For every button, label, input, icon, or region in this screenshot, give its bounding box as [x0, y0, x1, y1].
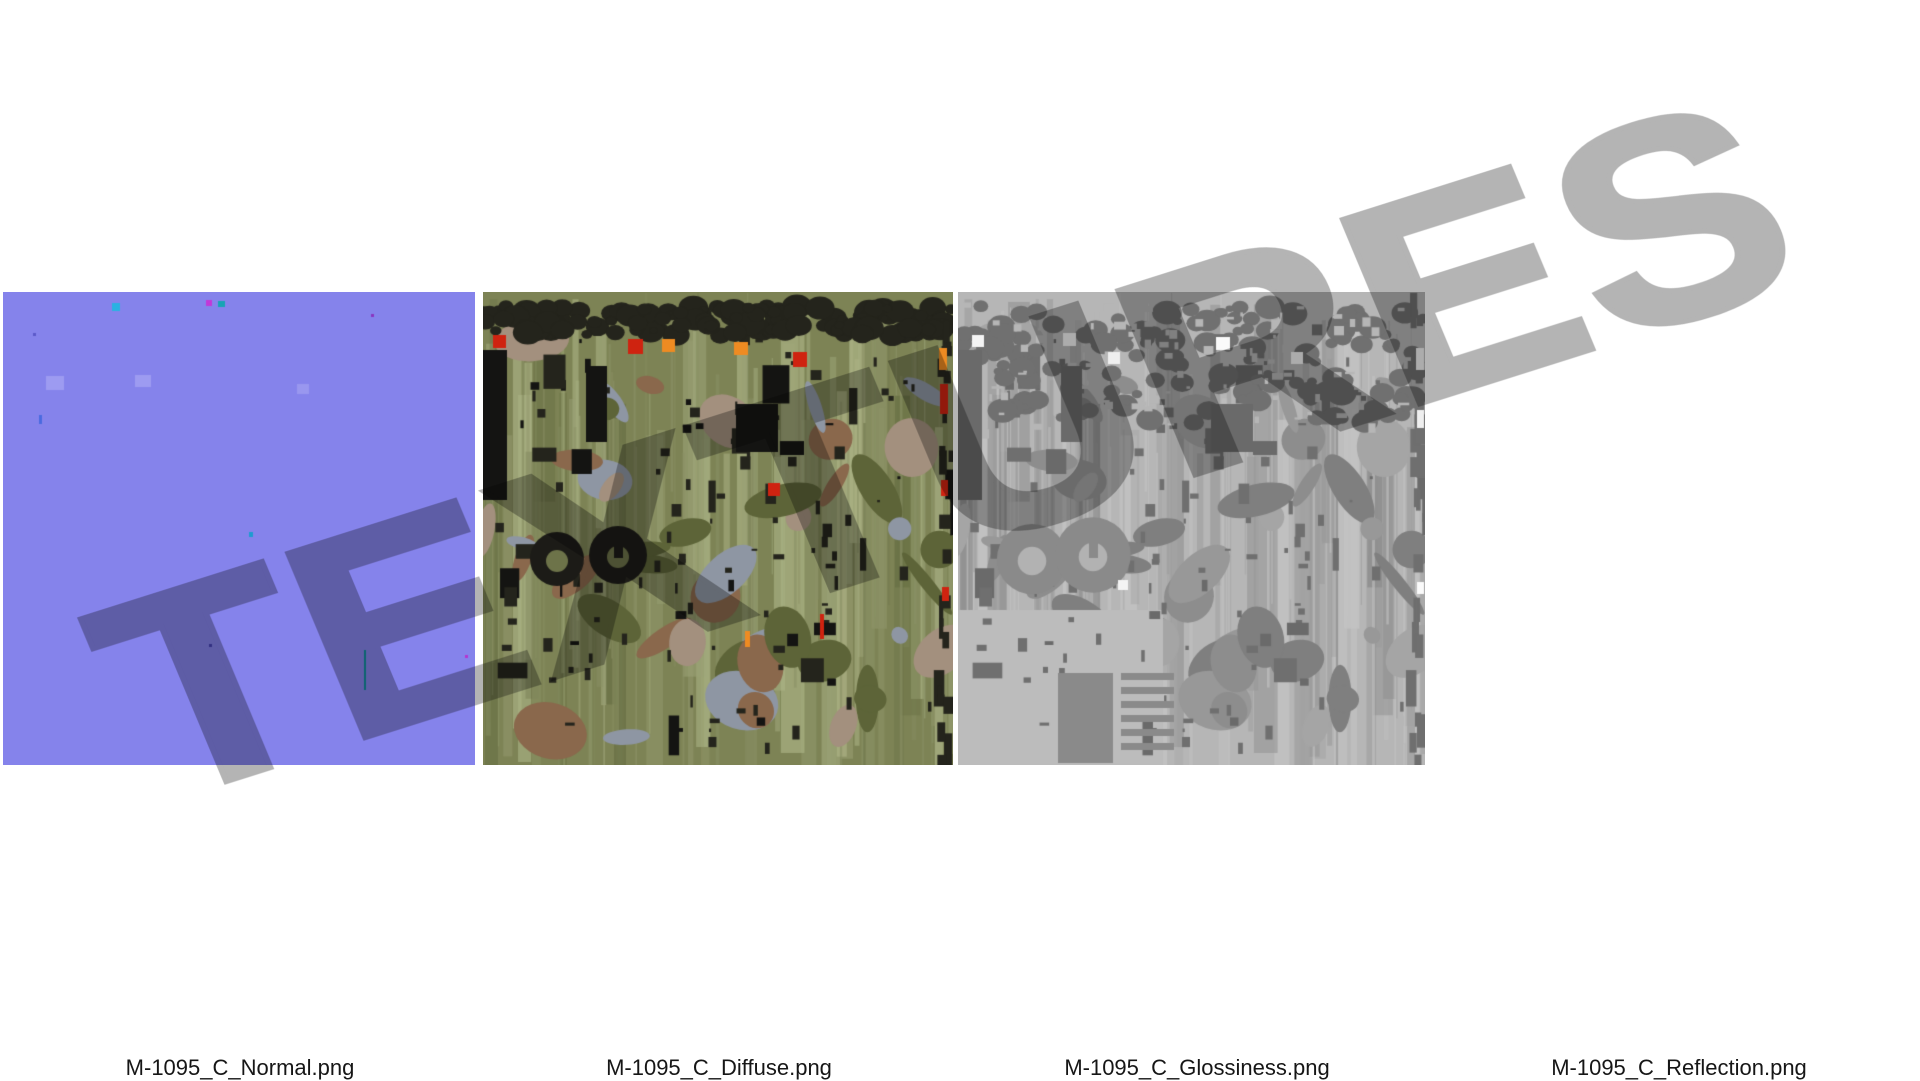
diffuse-map-thumbnail[interactable]: [483, 292, 953, 765]
reflection-map-tile: [1432, 292, 1900, 765]
filename-label-glossiness: M-1095_C_Glossiness.png: [1064, 1055, 1329, 1081]
reflection-map-thumbnail[interactable]: [1432, 292, 1900, 765]
filename-label-reflection: M-1095_C_Reflection.png: [1551, 1055, 1807, 1081]
diffuse-map-tile: [483, 292, 953, 765]
filename-label-diffuse: M-1095_C_Diffuse.png: [606, 1055, 832, 1081]
glossiness-map-thumbnail[interactable]: [958, 292, 1425, 765]
normal-map-tile: [3, 292, 475, 765]
glossiness-map-tile: [958, 292, 1425, 765]
texture-preview-page: TEXTURES M-1095_C_Normal.png M-1095_C_Di…: [0, 0, 1920, 1080]
normal-map-thumbnail[interactable]: [3, 292, 475, 765]
filename-label-normal: M-1095_C_Normal.png: [126, 1055, 355, 1081]
